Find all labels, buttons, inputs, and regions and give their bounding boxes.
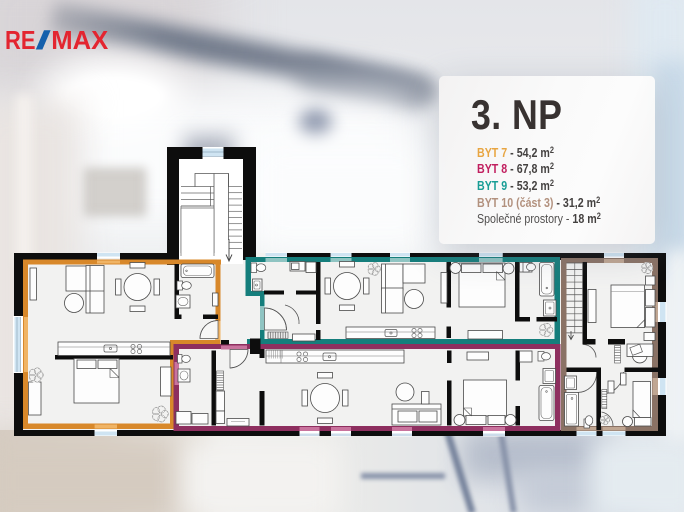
svg-text:RE: RE [5,26,36,54]
svg-text:MAX: MAX [51,26,109,54]
